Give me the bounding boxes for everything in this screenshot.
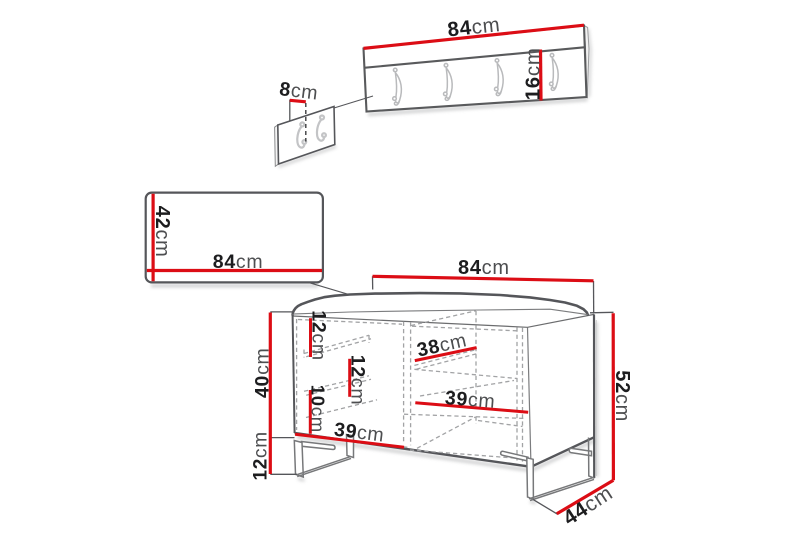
- svg-text:12cm: 12cm: [307, 310, 329, 361]
- svg-text:52cm: 52cm: [611, 370, 633, 422]
- svg-text:16cm: 16cm: [521, 47, 544, 100]
- svg-text:12cm: 12cm: [347, 355, 369, 406]
- svg-text:84cm: 84cm: [458, 257, 510, 279]
- svg-text:40cm: 40cm: [251, 348, 273, 399]
- svg-text:42cm: 42cm: [151, 206, 173, 258]
- svg-text:12cm: 12cm: [251, 431, 272, 480]
- svg-text:84cm: 84cm: [213, 251, 263, 273]
- svg-text:8cm: 8cm: [278, 78, 319, 105]
- svg-text:39cm: 39cm: [444, 387, 496, 413]
- svg-text:10cm: 10cm: [308, 385, 329, 433]
